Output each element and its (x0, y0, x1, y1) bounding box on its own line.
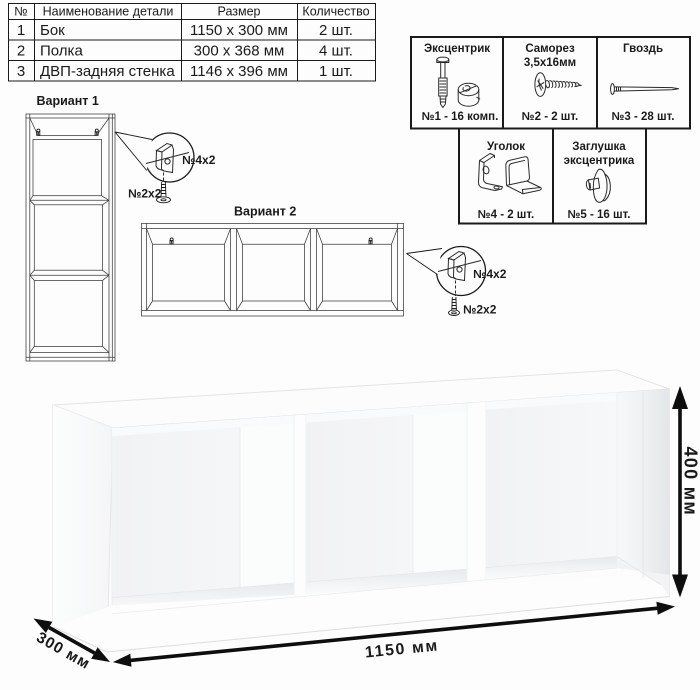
svg-text:Саморез: Саморез (525, 43, 575, 55)
svg-text:№3 - 28 шт.: №3 - 28 шт. (612, 111, 675, 123)
svg-text:Бок: Бок (40, 22, 65, 39)
svg-text:№4 - 2 шт.: №4 - 2 шт. (478, 209, 534, 221)
svg-text:Количество: Количество (302, 5, 369, 19)
svg-text:Уголок: Уголок (487, 141, 525, 153)
svg-text:3: 3 (17, 63, 25, 80)
svg-text:№: № (14, 5, 27, 19)
svg-text:Эксцентрик: Эксцентрик (424, 43, 490, 55)
svg-text:1146 х 396 мм: 1146 х 396 мм (190, 63, 288, 80)
svg-text:Размер: Размер (218, 5, 261, 19)
svg-text:ДВП-задняя стенка: ДВП-задняя стенка (40, 63, 175, 80)
svg-text:2: 2 (17, 43, 25, 60)
svg-text:№2 - 2 шт.: №2 - 2 шт. (522, 111, 578, 123)
svg-text:4 шт.: 4 шт. (319, 43, 353, 60)
svg-text:Гвоздь: Гвоздь (623, 43, 663, 55)
svg-text:№2х2: №2х2 (463, 303, 497, 317)
svg-text:№4х2: №4х2 (473, 267, 507, 281)
svg-text:эксцентрика: эксцентрика (564, 155, 635, 167)
svg-text:Заглушка: Заглушка (572, 141, 626, 153)
svg-text:Вариант 2: Вариант 2 (234, 205, 296, 219)
svg-text:1150 х 300 мм: 1150 х 300 мм (190, 22, 288, 39)
svg-text:Полка: Полка (40, 43, 83, 60)
svg-text:№2х2: №2х2 (128, 187, 162, 201)
svg-text:400 мм: 400 мм (681, 447, 700, 516)
svg-text:№1 - 16 комп.: №1 - 16 комп. (422, 111, 499, 123)
svg-text:3,5х16мм: 3,5х16мм (524, 57, 576, 69)
svg-text:1 шт.: 1 шт. (319, 63, 353, 80)
svg-text:2 шт.: 2 шт. (319, 22, 353, 39)
svg-text:300 х 368 мм: 300 х 368 мм (194, 43, 285, 60)
svg-text:Наименование детали: Наименование детали (43, 5, 174, 19)
svg-text:Вариант 1: Вариант 1 (37, 94, 99, 108)
svg-text:1: 1 (17, 22, 25, 39)
svg-text:№5 - 16 шт.: №5 - 16 шт. (568, 209, 631, 221)
svg-text:№4х2: №4х2 (182, 153, 216, 167)
